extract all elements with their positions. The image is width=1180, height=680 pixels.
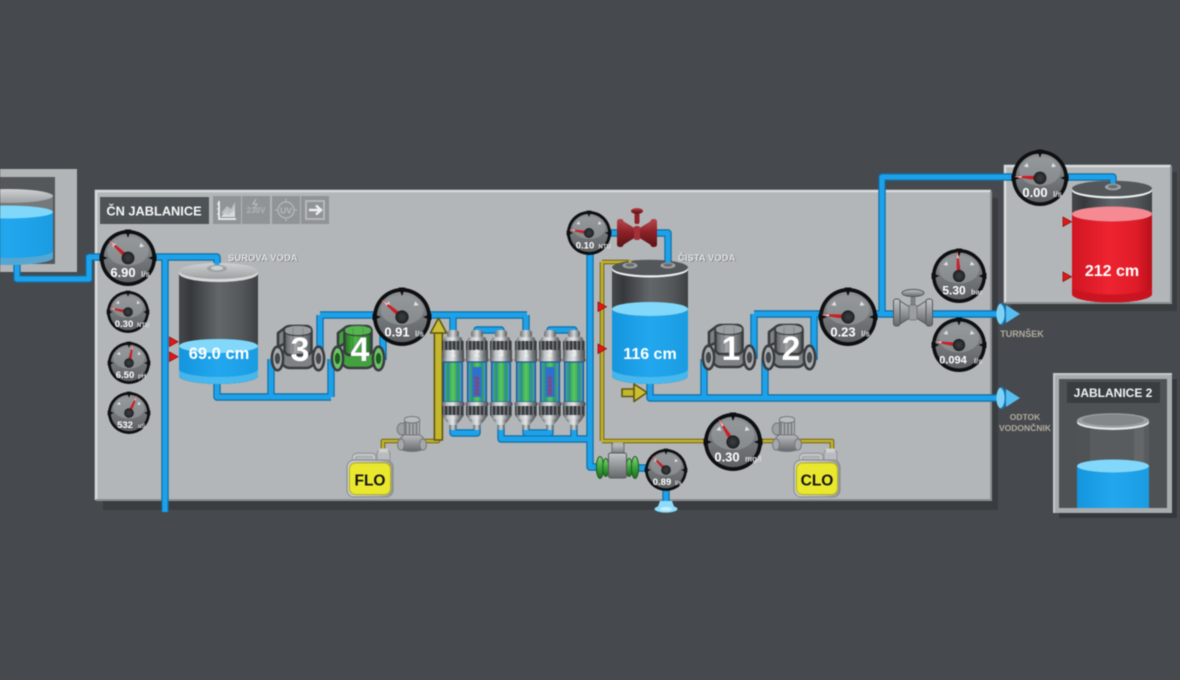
svg-text:3: 3 [498,349,504,360]
svg-text:0.10: 0.10 [576,241,595,252]
svg-text:CLO: CLO [801,473,834,490]
svg-text:PFAFF: PFAFF [475,376,481,395]
svg-text:116 cm: 116 cm [623,346,676,363]
svg-text:532: 532 [117,420,133,431]
svg-text:SUROVA VODA: SUROVA VODA [228,253,298,264]
svg-text:6.50: 6.50 [116,370,135,381]
svg-text:FLO: FLO [355,473,386,490]
svg-text:UV: UV [280,206,292,216]
svg-text:TURNŠEK: TURNŠEK [1000,328,1044,339]
svg-text:2: 2 [547,349,553,360]
svg-text:69.0 cm: 69.0 cm [189,345,250,363]
svg-text:l/s: l/s [861,330,870,339]
svg-text:ODTOK: ODTOK [1010,412,1041,422]
svg-text:6.90: 6.90 [110,265,135,280]
svg-text:3: 3 [291,331,310,369]
svg-text:l/s: l/s [675,481,682,487]
svg-text:0.91: 0.91 [384,325,409,340]
svg-text:mg/l: mg/l [745,455,761,464]
svg-text:PFAFF: PFAFF [548,376,554,395]
svg-text:4: 4 [351,331,370,369]
svg-text:l/s: l/s [141,270,150,279]
svg-text:2: 2 [474,349,480,360]
svg-text:bar: bar [971,287,983,296]
svg-text:2: 2 [782,330,801,368]
svg-text:0.00: 0.00 [1022,185,1047,200]
svg-text:0.89: 0.89 [653,477,672,488]
svg-text:5.30: 5.30 [942,283,966,297]
svg-text:230V: 230V [247,206,266,215]
svg-text:1: 1 [523,349,529,360]
svg-text:1: 1 [450,349,456,360]
svg-text:0.30: 0.30 [115,319,134,330]
svg-text:ČN JABLANICE: ČN JABLANICE [106,204,202,219]
svg-text:pH: pH [138,374,146,380]
svg-text:NTU: NTU [599,245,611,251]
svg-text:JABLANICE 2: JABLANICE 2 [1074,386,1153,400]
svg-text:0.30: 0.30 [714,450,739,465]
svg-text:1: 1 [722,330,741,368]
svg-text:0.23: 0.23 [830,325,855,340]
svg-text:0.094: 0.094 [939,354,967,366]
svg-text:212 cm: 212 cm [1085,263,1139,280]
svg-text:l/s: l/s [415,330,424,339]
svg-text:3: 3 [571,349,577,360]
svg-text:uS: uS [138,424,146,430]
svg-text:l/s: l/s [1053,190,1062,199]
svg-text:NTU: NTU [137,323,149,329]
svg-text:VODONČNIK: VODONČNIK [999,422,1052,433]
svg-text:l/s: l/s [974,356,982,365]
svg-text:ČISTA VODA: ČISTA VODA [678,252,736,264]
